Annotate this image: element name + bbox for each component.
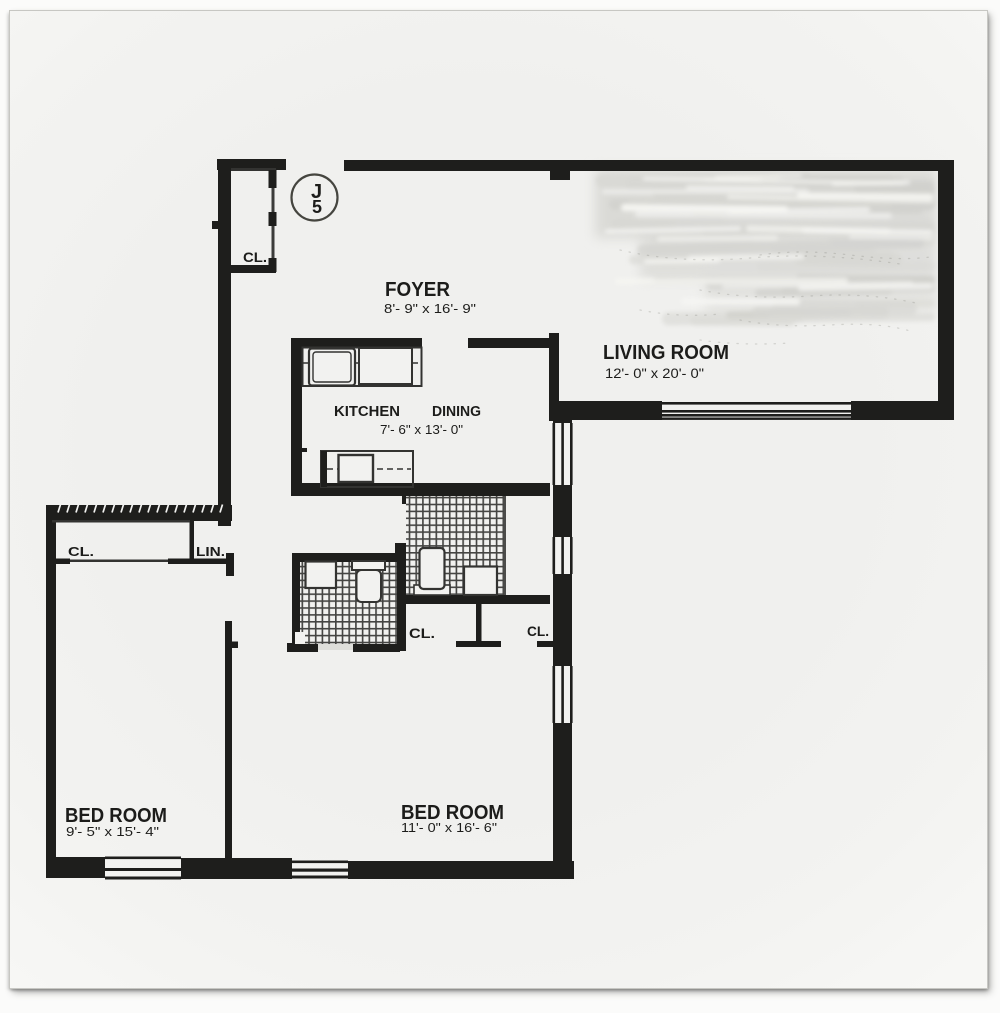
svg-text:5: 5: [312, 197, 322, 217]
svg-text:LIVING ROOM: LIVING ROOM: [603, 342, 729, 364]
svg-text:KITCHEN: KITCHEN: [334, 404, 400, 420]
svg-text:9'- 5" x 15'- 4": 9'- 5" x 15'- 4": [66, 824, 159, 839]
svg-text:FOYER: FOYER: [385, 278, 450, 301]
svg-text:CL.: CL.: [527, 624, 549, 639]
svg-text:LIN.: LIN.: [196, 544, 225, 559]
svg-text:12'- 0" x 20'- 0": 12'- 0" x 20'- 0": [605, 366, 704, 381]
svg-text:CL.: CL.: [68, 544, 94, 559]
svg-text:7'- 6" x 13'- 0": 7'- 6" x 13'- 0": [380, 422, 463, 437]
svg-text:11'- 0" x 16'- 6": 11'- 0" x 16'- 6": [401, 820, 497, 835]
svg-text:CL.: CL.: [409, 625, 435, 641]
svg-text:DINING: DINING: [432, 404, 481, 420]
svg-text:8'- 9" x 16'- 9": 8'- 9" x 16'- 9": [384, 301, 476, 316]
svg-text:CL.: CL.: [243, 249, 267, 265]
